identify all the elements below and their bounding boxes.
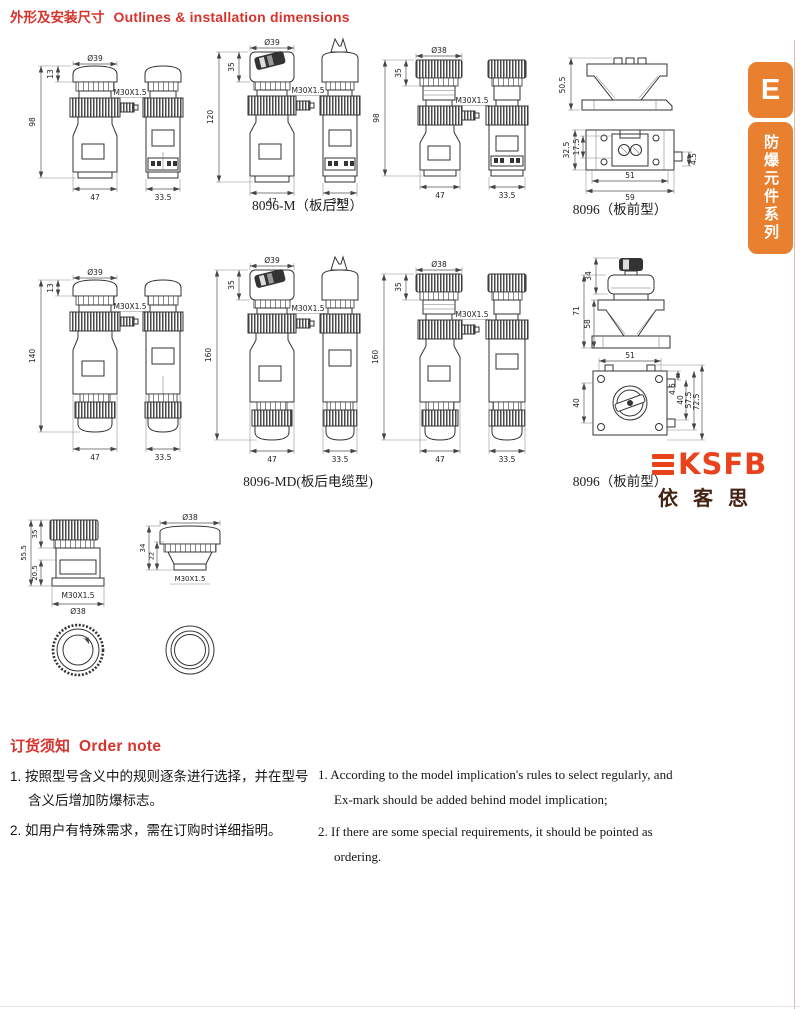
dim-dia: Ø39 — [264, 38, 280, 47]
front-view: Ø38 35 M30X1.5 98 47 — [372, 46, 490, 200]
dim-thread: M30X1.5 — [455, 96, 488, 105]
series-name: 防爆元件系列 — [760, 134, 781, 242]
dim-height: 98 — [372, 113, 381, 123]
dim-height: 98 — [28, 117, 37, 127]
side-view: 33.5 — [486, 274, 528, 464]
figure-8096md-selector: Ø39 35 M30X1.5 160 47 — [200, 254, 368, 466]
series-tab-letter: E — [748, 62, 793, 118]
series-tab: 防爆元件系列 — [748, 122, 793, 254]
switch-top-view: 51 40 4.5 40 57.5 72.5 — [572, 351, 705, 440]
front-view: Ø39 M30X1.5 13 140 47 — [28, 268, 149, 462]
side-view: 33.5 — [143, 280, 183, 462]
order-zh-item-2: 2. 如用户有特殊需求，需在订购时详细指明。 — [10, 819, 318, 843]
page-edge-line — [794, 40, 795, 1009]
rail-side-view: 34 71 58 — [572, 258, 670, 348]
dim-dia: Ø38 — [431, 46, 447, 55]
dim-height: 160 — [371, 350, 380, 365]
front-view: Ø38 35 M30X1.5 160 47 — [371, 260, 490, 464]
dim-bracket-height: 50.5 — [558, 76, 567, 93]
dim-dia: Ø39 — [264, 256, 280, 265]
figure-8096-bracket: 50.5 32.5 17.5 4.5 51 59 — [552, 56, 702, 202]
figure-button-small: Ø38 34 22 M30X1.5 — [140, 512, 235, 680]
dim-inner-h: 17.5 — [572, 138, 581, 155]
dim-dia: Ø39 — [87, 268, 103, 277]
dim-width: 47 — [90, 193, 100, 202]
figure-8096m-selector: Ø39 35 M30X1.5 120 47 — [200, 36, 368, 206]
order-heading-en: Order note — [79, 738, 161, 756]
order-en-item-2: 2. If there are some special requirement… — [318, 820, 678, 869]
small-front-view: Ø38 34 22 M30X1.5 — [139, 513, 220, 584]
dim-r1: 4.5 — [668, 383, 677, 395]
dim-side-width: 33.5 — [155, 193, 172, 202]
dim-top-w: 51 — [625, 351, 635, 360]
dim-height: 140 — [28, 349, 37, 364]
order-heading-zh: 订货须知 — [10, 735, 70, 756]
dim-dia: Ø39 — [87, 54, 103, 63]
order-note-zh-list: 1. 按照型号含义中的规则逐条进行选择，并在型号含义后增加防爆标志。 2. 如用… — [10, 765, 318, 850]
figure-8096m-mushroom: Ø39 98 13 M30X1.5 47 — [18, 52, 198, 204]
figure-8096-panel-switch: 34 71 58 51 40 4.5 — [545, 254, 717, 466]
ring-top-view — [166, 626, 214, 674]
knurled-top-view — [53, 625, 103, 675]
dim-width: 47 — [435, 191, 445, 200]
dim-height: 160 — [204, 348, 213, 363]
page-bottom-line — [0, 1006, 800, 1007]
figure-8096md-knurled: Ø38 35 M30X1.5 160 47 — [368, 258, 530, 466]
brand-logo: KSFB 依客思 — [652, 450, 795, 511]
page-title-zh: 外形及安装尺寸 — [10, 6, 105, 26]
dim-thread: M30X1.5 — [175, 575, 206, 583]
dim-lower: 58 — [583, 319, 592, 329]
page-title: 外形及安装尺寸 Outlines & installation dimensio… — [10, 6, 350, 26]
dim-lip: 13 — [46, 69, 55, 79]
dim-h1: 34 — [139, 543, 147, 552]
dim-knob: 34 — [584, 271, 593, 281]
dim-head: 35 — [394, 282, 403, 292]
side-view: 33.5 — [320, 39, 360, 206]
base-bottom-view: 32.5 17.5 4.5 51 59 — [562, 130, 698, 202]
dim-outer-h: 32.5 — [562, 141, 571, 158]
logo-zh: 依客思 — [652, 482, 795, 511]
dim-inner-w: 51 — [625, 171, 635, 180]
dim-dia: Ø38 — [431, 260, 447, 269]
dim-r4: 72.5 — [692, 393, 701, 410]
page-title-en: Outlines & installation dimensions — [114, 9, 350, 25]
dim-thread: M30X1.5 — [291, 86, 324, 95]
front-view: Ø39 35 M30X1.5 160 47 — [204, 256, 326, 464]
figure-button-section: 55.5 35 20.5 M30X1.5 Ø38 — [20, 512, 138, 680]
dim-width: 47 — [90, 453, 100, 462]
dim-h: 55.5 — [20, 545, 28, 561]
front-view: Ø39 35 M30X1.5 120 47 — [206, 38, 326, 206]
dim-thread: M30X1.5 — [61, 591, 94, 600]
caption-8096md: 8096-MD(板后电缆型) — [218, 470, 398, 490]
order-note-heading: 订货须知 Order note — [10, 735, 161, 756]
dim-thread: M30X1.5 — [113, 88, 146, 97]
dim-thread: M30X1.5 — [113, 302, 146, 311]
catalog-page: 外形及安装尺寸 Outlines & installation dimensio… — [0, 0, 800, 1009]
dim-side-width: 33.5 — [332, 455, 349, 464]
dim-head: 35 — [227, 280, 236, 290]
dim-height: 120 — [206, 110, 215, 125]
side-view: 33.5 — [143, 66, 183, 202]
series-letter: E — [761, 74, 780, 107]
dim-lip: 13 — [46, 283, 55, 293]
dim-dia: Ø38 — [70, 607, 86, 616]
dim-total: 71 — [572, 306, 581, 316]
dim-head: 35 — [227, 62, 236, 72]
dim-head: 35 — [31, 530, 39, 539]
order-note-en-list: 1. According to the model implication's … — [318, 763, 678, 878]
dim-head: 35 — [394, 68, 403, 78]
caption-8096-front: 8096（板前型） — [550, 198, 690, 218]
side-view: 33.5 — [486, 60, 528, 200]
dim-h2: 22 — [148, 552, 156, 560]
side-view: 33.5 — [320, 257, 360, 464]
front-view: Ø39 98 13 M30X1.5 47 — [28, 54, 149, 202]
dim-left-h: 40 — [572, 398, 581, 408]
dim-dia: Ø38 — [182, 513, 198, 522]
dim-lower: 20.5 — [31, 565, 39, 581]
dim-width: 47 — [435, 455, 445, 464]
figure-8096-knurled: Ø38 35 M30X1.5 98 47 — [368, 44, 530, 204]
dim-thread: M30X1.5 — [455, 310, 488, 319]
dim-side-width: 33.5 — [155, 453, 172, 462]
logo-latin: KSFB — [678, 450, 767, 479]
dim-side-width: 33.5 — [499, 455, 516, 464]
dim-thread: M30X1.5 — [291, 304, 324, 313]
section-view: 55.5 35 20.5 M30X1.5 Ø38 — [20, 520, 104, 616]
dim-offset: 4.5 — [689, 153, 698, 165]
dim-side-width: 33.5 — [499, 191, 516, 200]
bracket-view: 50.5 — [558, 58, 672, 110]
figure-8096md-mushroom: Ø39 M30X1.5 13 140 47 — [18, 266, 198, 464]
caption-8096m: 8096-M（板后型） — [225, 194, 390, 214]
order-en-item-1: 1. According to the model implication's … — [318, 763, 678, 812]
order-zh-item-1: 1. 按照型号含义中的规则逐条进行选择，并在型号含义后增加防爆标志。 — [10, 765, 318, 812]
dim-width: 47 — [267, 455, 277, 464]
logo-bars-icon — [652, 454, 674, 475]
